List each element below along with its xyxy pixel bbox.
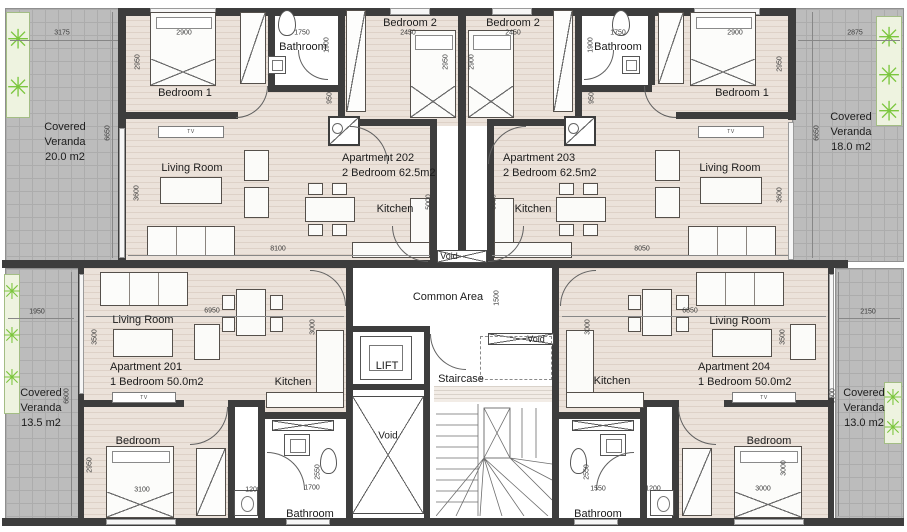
dim-label: 1200 [645, 486, 661, 493]
sink [284, 434, 310, 456]
dining-table [642, 289, 672, 336]
dim-label: 1900 [588, 37, 595, 53]
dim-label: 1550 [590, 486, 606, 493]
room-label-bathroom-202: Bathroom [279, 41, 327, 53]
chair [628, 295, 641, 310]
room-label-void-right: Void [527, 334, 545, 344]
kitchen-counter [266, 392, 344, 408]
window [106, 519, 176, 525]
dim-label: 3600 [777, 187, 784, 203]
veranda-area: 20.0 m2 [44, 150, 86, 165]
apartment-name: Apartment 201 [110, 360, 204, 375]
room-label-kitchen-202: Kitchen [377, 203, 414, 215]
room-label-kitchen-203: Kitchen [515, 203, 552, 215]
dining-table [305, 197, 355, 222]
tv-unit: TV [112, 392, 176, 403]
wardrobe [240, 12, 266, 84]
wall [558, 412, 647, 419]
chair [332, 183, 347, 195]
veranda-line: Covered [843, 386, 885, 401]
apartment-name: Apartment 204 [698, 360, 792, 375]
sliding-door [788, 122, 794, 260]
wardrobe [553, 10, 573, 112]
room-label-void-top: Void [440, 251, 458, 261]
room-label-bathroom-201: Bathroom [286, 508, 334, 520]
apartment-202-title: Apartment 202 2 Bedroom 62.5m2 [342, 151, 436, 181]
armchair [194, 324, 220, 360]
chair [308, 183, 323, 195]
wall [126, 112, 238, 119]
armchair [244, 187, 269, 218]
chair [676, 317, 689, 332]
veranda-line: Veranda [44, 135, 86, 150]
wall [788, 8, 796, 120]
wardrobe [346, 10, 366, 112]
apartment-204-title: Apartment 204 1 Bedroom 50.0m2 [698, 360, 792, 390]
chair [270, 317, 283, 332]
floor-plan: ✳ ✳ ✳ ✳ ✳ ✳ ✳ ✳ ✳ ✳ [0, 0, 907, 532]
dim-label: 1200 [245, 487, 261, 494]
wall [424, 332, 430, 518]
coffee-table [160, 177, 222, 204]
armchair [244, 150, 269, 181]
dim-label: 6600 [830, 388, 837, 404]
coffee-table [712, 329, 772, 357]
chair [222, 295, 235, 310]
dim-label: 6650 [814, 125, 821, 141]
veranda-line: Veranda [20, 401, 62, 416]
apartment-name: Apartment 202 [342, 151, 436, 166]
armchair [790, 324, 816, 360]
dim-label: 950 [589, 92, 596, 104]
veranda-label-top-left: Covered Veranda 20.0 m2 [44, 120, 86, 165]
double-bed [690, 12, 756, 86]
wall [348, 326, 430, 332]
dim-label: 2950 [135, 54, 142, 70]
dim-label: 1500 [494, 290, 501, 306]
kitchen-counter [566, 392, 644, 408]
dimension-line [798, 40, 900, 41]
window [390, 8, 430, 15]
dim-label: 5000 [426, 194, 433, 210]
lift-car [360, 336, 412, 380]
dim-label: 6850 [682, 308, 698, 315]
room-label-void-shaft: Void [378, 431, 397, 442]
apartment-type: 2 Bedroom 62.5m2 [503, 166, 597, 181]
dimension-line [838, 318, 900, 319]
dim-label: 2950 [443, 54, 450, 70]
double-bed [734, 446, 802, 518]
tv-label: TV [760, 395, 767, 401]
dim-label: 3175 [54, 30, 70, 37]
void-shaft [352, 396, 424, 514]
dim-label: 8100 [270, 246, 286, 253]
room-label-bedroom1-202: Bedroom 1 [158, 87, 212, 99]
double-bed [106, 446, 174, 518]
sliding-door [79, 274, 84, 394]
apartment-type: 1 Bedroom 50.0m2 [698, 375, 792, 390]
chair [332, 224, 347, 236]
dimension-line [492, 255, 788, 256]
dim-label: 2450 [400, 30, 416, 37]
dining-table [556, 197, 606, 222]
dim-label: 2900 [727, 30, 743, 37]
wall [648, 8, 655, 85]
dim-label: 2900 [176, 30, 192, 37]
dimension-line [128, 255, 430, 256]
wall [552, 268, 559, 518]
dim-label: 3100 [134, 487, 150, 494]
chair [583, 224, 598, 236]
dining-table [236, 289, 266, 336]
double-bed [150, 12, 216, 86]
dim-label: 2450 [505, 30, 521, 37]
veranda-label-bottom-left: Covered Veranda 13.5 m2 [20, 386, 62, 431]
dim-label: 2900 [469, 54, 476, 70]
dim-label: 3000 [585, 319, 592, 335]
sofa [696, 272, 784, 306]
dimension-line [112, 12, 113, 258]
veranda-area: 13.0 m2 [843, 416, 885, 431]
room-label-bathroom-203: Bathroom [594, 41, 642, 53]
veranda-label-top-right: Covered Veranda 18.0 m2 [830, 110, 872, 155]
sink [268, 56, 286, 74]
apartment-203-title: Apartment 203 2 Bedroom 62.5m2 [503, 151, 597, 181]
wall [338, 8, 345, 119]
armchair [655, 187, 680, 218]
room-label-bedroom-201: Bedroom [116, 435, 161, 447]
room-label-bathroom-204: Bathroom [574, 508, 622, 520]
armchair [655, 150, 680, 181]
apartment-name: Apartment 203 [503, 151, 597, 166]
apartment-type: 1 Bedroom 50.0m2 [110, 375, 204, 390]
stair-landing [434, 386, 552, 402]
double-bed [410, 30, 456, 118]
sofa [147, 226, 235, 256]
dim-label: 2950 [87, 457, 94, 473]
dim-label: 3000 [781, 460, 788, 476]
dim-label: 3000 [310, 319, 317, 335]
veranda-area: 13.5 m2 [20, 416, 62, 431]
room-label-bedroom2-202: Bedroom 2 [383, 17, 437, 29]
room-label-living-203: Living Room [699, 162, 760, 174]
chair [559, 183, 574, 195]
window [734, 519, 804, 525]
wardrobe [658, 12, 684, 84]
veranda-line: Veranda [843, 401, 885, 416]
washing-machine [234, 490, 258, 516]
veranda-line: Covered [44, 120, 86, 135]
room-label-living-204: Living Room [709, 315, 770, 327]
room-label-kitchen-204: Kitchen [594, 375, 631, 387]
double-bed [468, 30, 514, 118]
chair [308, 224, 323, 236]
tv-unit: TV [732, 392, 796, 403]
wall [494, 119, 575, 126]
apartment-201-title: Apartment 201 1 Bedroom 50.0m2 [110, 360, 204, 390]
plant-icon: ✳ [7, 75, 30, 102]
room-label-living-201: Living Room [112, 314, 173, 326]
dim-label: 2950 [777, 56, 784, 72]
tv-unit: TV [158, 126, 224, 138]
wall [458, 8, 466, 252]
plant-icon: ✳ [878, 25, 901, 52]
wall [430, 119, 437, 264]
chair [222, 317, 235, 332]
dimension-line [562, 316, 826, 317]
tv-unit: TV [698, 126, 764, 138]
room-label-bedroom2-203: Bedroom 2 [486, 17, 540, 29]
veranda-line: Covered [20, 386, 62, 401]
dimension-line [10, 40, 118, 41]
shower [564, 116, 596, 146]
plant-icon: ✳ [884, 417, 902, 439]
staircase-drawing [436, 404, 552, 516]
dim-label: 2550 [584, 464, 591, 480]
wardrobe [682, 448, 712, 516]
room-label-bedroom1-203: Bedroom 1 [715, 87, 769, 99]
dim-label: 5000 [491, 194, 498, 210]
dim-label: 2550 [315, 464, 322, 480]
veranda-area: 18.0 m2 [830, 140, 872, 155]
dim-label: 1950 [29, 309, 45, 316]
void-shaft [272, 420, 334, 431]
dim-label: 6650 [105, 125, 112, 141]
toilet [320, 448, 337, 474]
sofa [688, 226, 776, 256]
kitchen-counter [316, 330, 344, 396]
chair [559, 224, 574, 236]
dim-label: 3500 [780, 329, 787, 345]
chair [270, 295, 283, 310]
dim-label: 6950 [204, 308, 220, 315]
dimension-line [8, 318, 74, 319]
veranda-line: Covered [830, 110, 872, 125]
dim-label: 2875 [847, 30, 863, 37]
sliding-door [119, 128, 125, 258]
tv-label: TV [187, 129, 194, 135]
room-label-lift: LIFT [376, 360, 399, 372]
coffee-table [700, 177, 762, 204]
dim-label: 1750 [294, 30, 310, 37]
room-label-staircase: Staircase [438, 373, 484, 385]
chair [628, 317, 641, 332]
tv-label: TV [140, 395, 147, 401]
plant-icon: ✳ [884, 387, 902, 409]
dim-label: 3500 [92, 329, 99, 345]
room-label-living-202: Living Room [161, 162, 222, 174]
void-shaft [572, 420, 634, 431]
plant-icon: ✳ [878, 99, 901, 126]
wall [676, 112, 788, 119]
wall [258, 412, 346, 419]
apartment-type: 2 Bedroom 62.5m2 [342, 166, 436, 181]
dimension-line [71, 272, 72, 516]
dim-label: 950 [327, 92, 334, 104]
dim-label: 3000 [755, 486, 771, 493]
dim-label: 1750 [610, 30, 626, 37]
wall [575, 8, 582, 119]
sink [622, 56, 640, 74]
room-label-common-area: Common Area [413, 291, 483, 303]
room-label-kitchen-201: Kitchen [275, 376, 312, 388]
plant-icon: ✳ [3, 367, 21, 389]
dim-label: 8050 [634, 246, 650, 253]
wardrobe [196, 448, 226, 516]
plant-icon: ✳ [3, 281, 21, 303]
kitchen-counter [566, 330, 594, 396]
dim-label: 6600 [64, 388, 71, 404]
coffee-table [113, 329, 173, 357]
window [492, 8, 532, 15]
dim-label: 2150 [860, 309, 876, 316]
veranda-label-bottom-right: Covered Veranda 13.0 m2 [843, 386, 885, 431]
washing-machine [650, 490, 674, 516]
dim-label: 1900 [324, 37, 331, 53]
plant-icon: ✳ [3, 325, 21, 347]
dimension-line [838, 272, 839, 516]
veranda-line: Veranda [830, 125, 872, 140]
sliding-door [829, 274, 834, 398]
plant-icon: ✳ [878, 63, 901, 90]
tv-label: TV [727, 129, 734, 135]
wall [348, 384, 430, 390]
sofa [100, 272, 188, 306]
room-label-bedroom-204: Bedroom [747, 435, 792, 447]
dim-label: 1700 [304, 485, 320, 492]
chair [583, 183, 598, 195]
dim-label: 3600 [134, 185, 141, 201]
